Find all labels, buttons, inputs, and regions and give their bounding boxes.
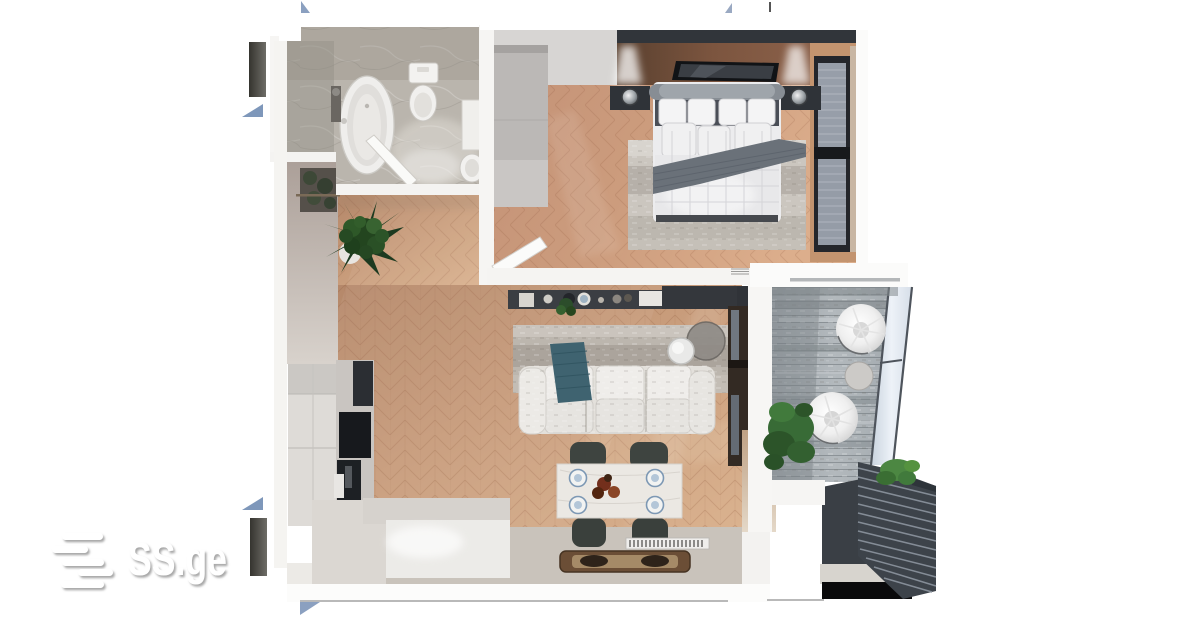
svg-text:SS.ge: SS.ge bbox=[128, 533, 227, 585]
